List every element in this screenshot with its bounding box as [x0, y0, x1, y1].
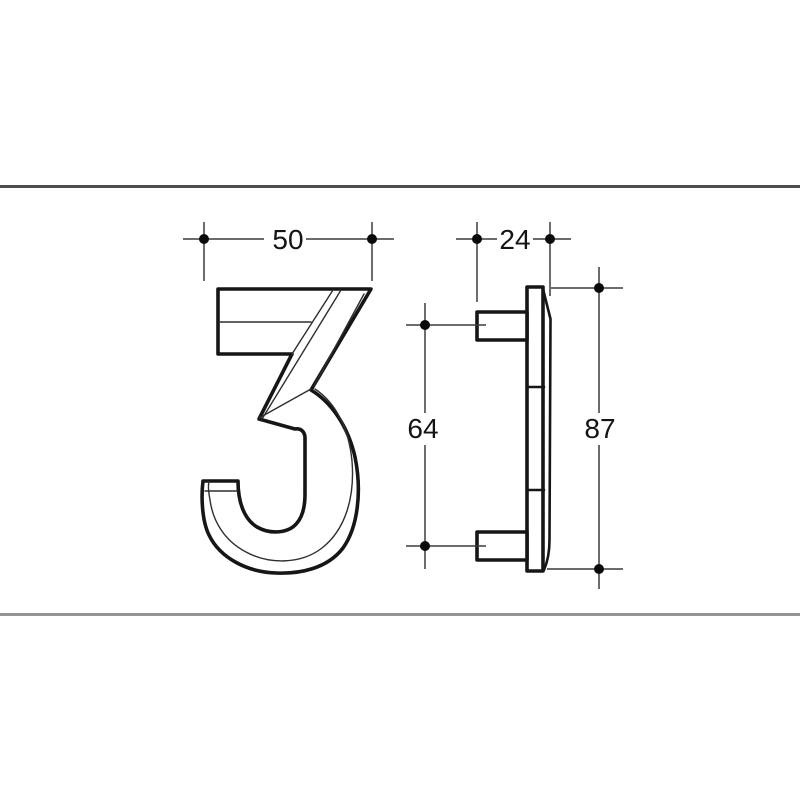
side-view-profile [477, 287, 551, 571]
dimension-width-label: 50 [272, 224, 303, 255]
dimension-drawing-canvas: 50 24 64 [0, 0, 800, 800]
dimension-marker-dot [199, 234, 209, 244]
drawing-page: 50 24 64 [0, 0, 800, 800]
dimension-marker-dot [420, 320, 430, 330]
dimension-marker-dot [594, 283, 604, 293]
dimension-stud-spacing-label: 64 [407, 413, 438, 444]
dimension-marker-dot [472, 234, 482, 244]
dimension-marker-dot [545, 234, 555, 244]
side-view-plate [527, 287, 543, 571]
dimension-marker-dot [594, 564, 604, 574]
dimension-marker-dot [420, 541, 430, 551]
dimension-height: 87 [547, 267, 623, 589]
dimension-stud-spacing: 64 [406, 303, 486, 569]
dimension-depth-label: 24 [499, 224, 530, 255]
front-view-numeral-3 [202, 289, 371, 573]
dimension-depth: 24 [456, 222, 571, 302]
side-view-top-stud [477, 312, 527, 340]
dimension-height-label: 87 [584, 413, 615, 444]
dimension-width: 50 [183, 222, 394, 281]
dimension-marker-dot [367, 234, 377, 244]
